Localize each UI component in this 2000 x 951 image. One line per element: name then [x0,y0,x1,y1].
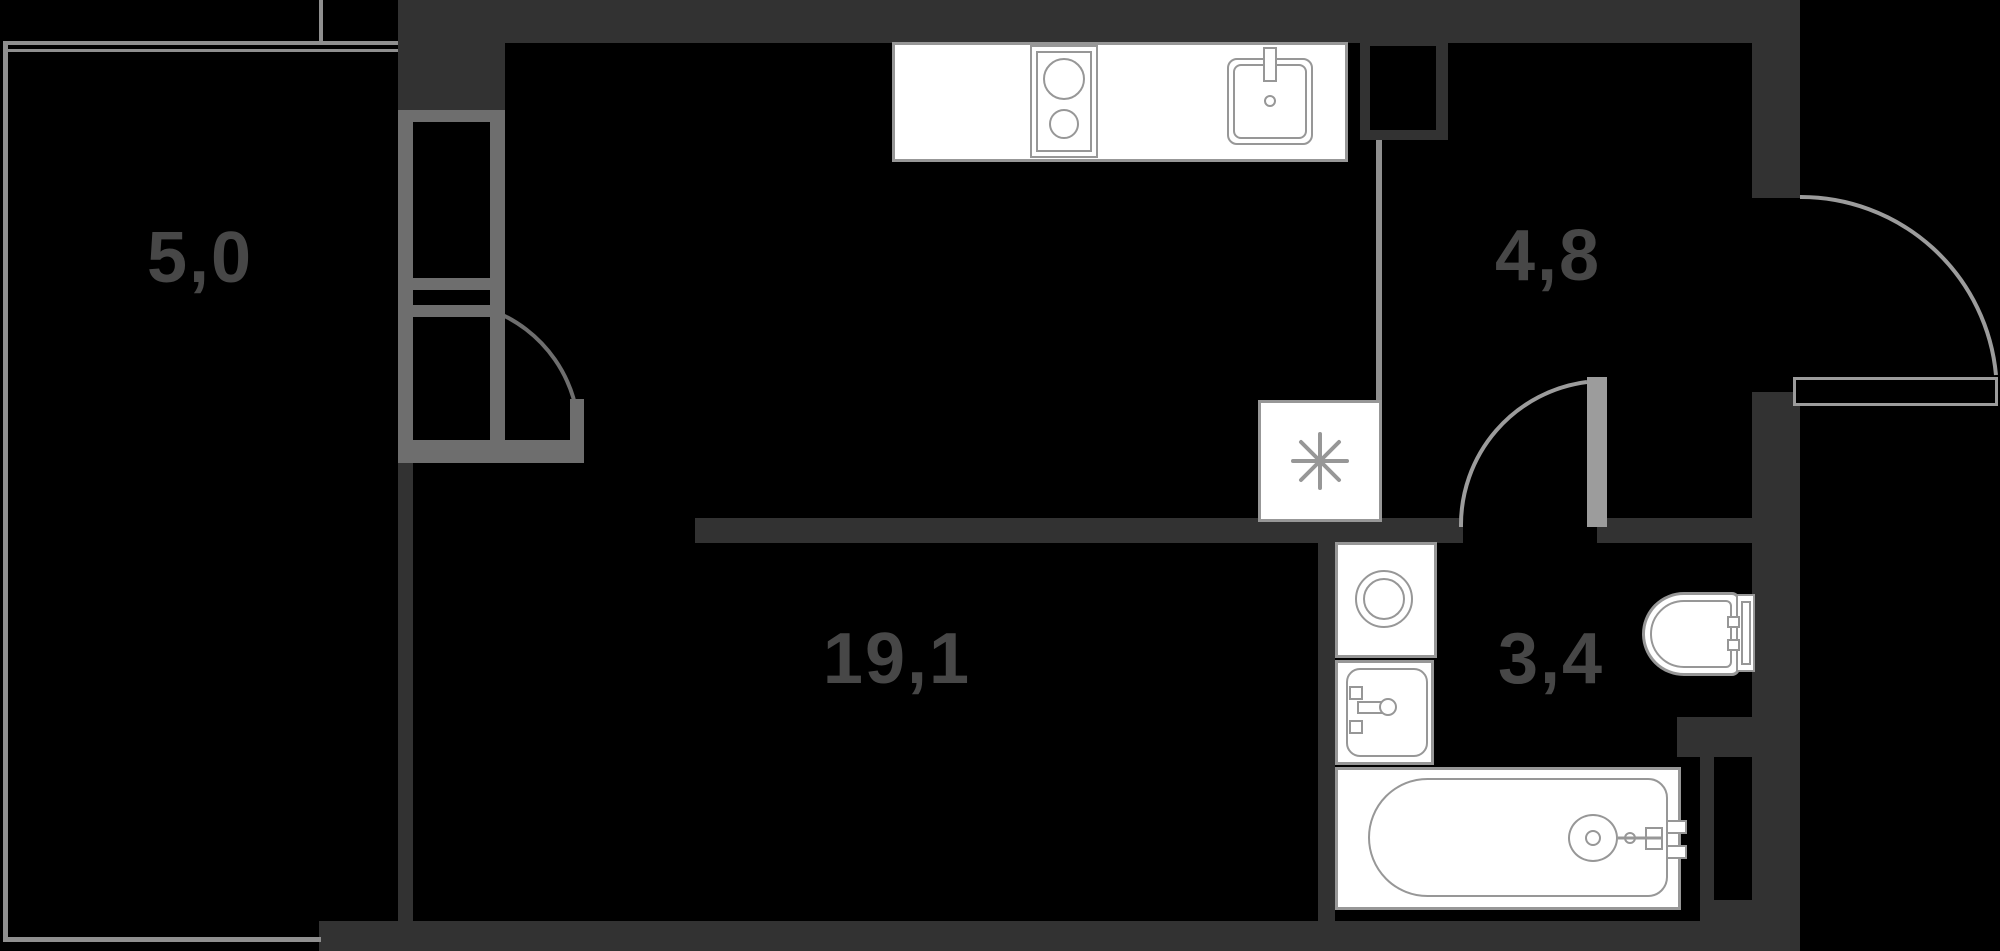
wall-toilet-bottom [1677,717,1800,757]
cooktop-burner-small [1049,109,1079,139]
building-edge-line [319,0,323,42]
balcony-area-label: 5,0 [147,217,253,299]
bathtub-faucet-tab-2 [1666,845,1687,859]
entry-door-swing-arc [1800,197,1996,375]
bathroom-door-swing-arc [1461,382,1587,527]
bathroom-area-label: 3,4 [1498,618,1604,700]
bathtub-faucet-knob [1624,832,1636,844]
living-room-area-label: 19,1 [823,618,971,700]
window-frame-divider-1 [410,278,493,290]
wall-bathroom-left [1318,543,1335,951]
window-frame-top-bar [398,110,505,122]
wash-basin-tap-left-1 [1349,686,1363,700]
toilet-hinge-2 [1727,639,1740,651]
toilet-hinge-1 [1727,616,1740,628]
bathtub-faucet-body [1645,827,1663,850]
wall-top [398,0,1800,43]
bathtub-basin [1368,778,1668,897]
hallway-area-label: 4,8 [1495,215,1601,297]
cooktop-burner-large [1043,58,1085,100]
window-frame-bottom-bar [398,440,505,463]
floor-plan: 5,0 19,1 4,8 3,4 [0,0,2000,951]
balcony-glazing-top-outer [6,41,398,45]
kitchen-zone-line [1376,140,1382,402]
refrigerator-niche [1258,400,1382,522]
balcony-door-leaf-end [570,399,584,440]
toilet-tank-inner [1741,601,1751,665]
balcony-door-leaf [505,440,584,463]
wall-right-upper [1752,43,1800,198]
balcony-glazing-bottom [3,937,321,942]
kitchen-faucet [1263,47,1277,82]
wash-basin-faucet-knob [1379,698,1397,716]
wall-balcony-head [398,43,505,110]
wall-room-divider-right [1597,518,1800,543]
wall-bottom [319,921,1800,951]
bathtub-faucet-tab-1 [1666,820,1687,834]
window-frame-divider-2 [410,305,493,317]
balcony-glazing-top-inner [6,49,398,52]
duct-shaft-left [1700,757,1714,921]
vent-shaft-kitchen-core [1370,46,1436,130]
wall-balcony-side [398,463,413,921]
washing-machine-drum-inner [1363,578,1405,620]
bathtub-drain-inner [1585,830,1601,846]
kitchen-sink-drain [1264,95,1276,107]
duct-shaft-bottom [1700,900,1800,925]
toilet-bowl-inner [1650,600,1732,668]
wall-right-lower [1752,392,1800,951]
bathroom-door-leaf [1587,377,1607,527]
entry-door-leaf [1793,377,1998,406]
wash-basin-tap-left-2 [1349,720,1363,734]
balcony-glazing-left [3,41,8,942]
